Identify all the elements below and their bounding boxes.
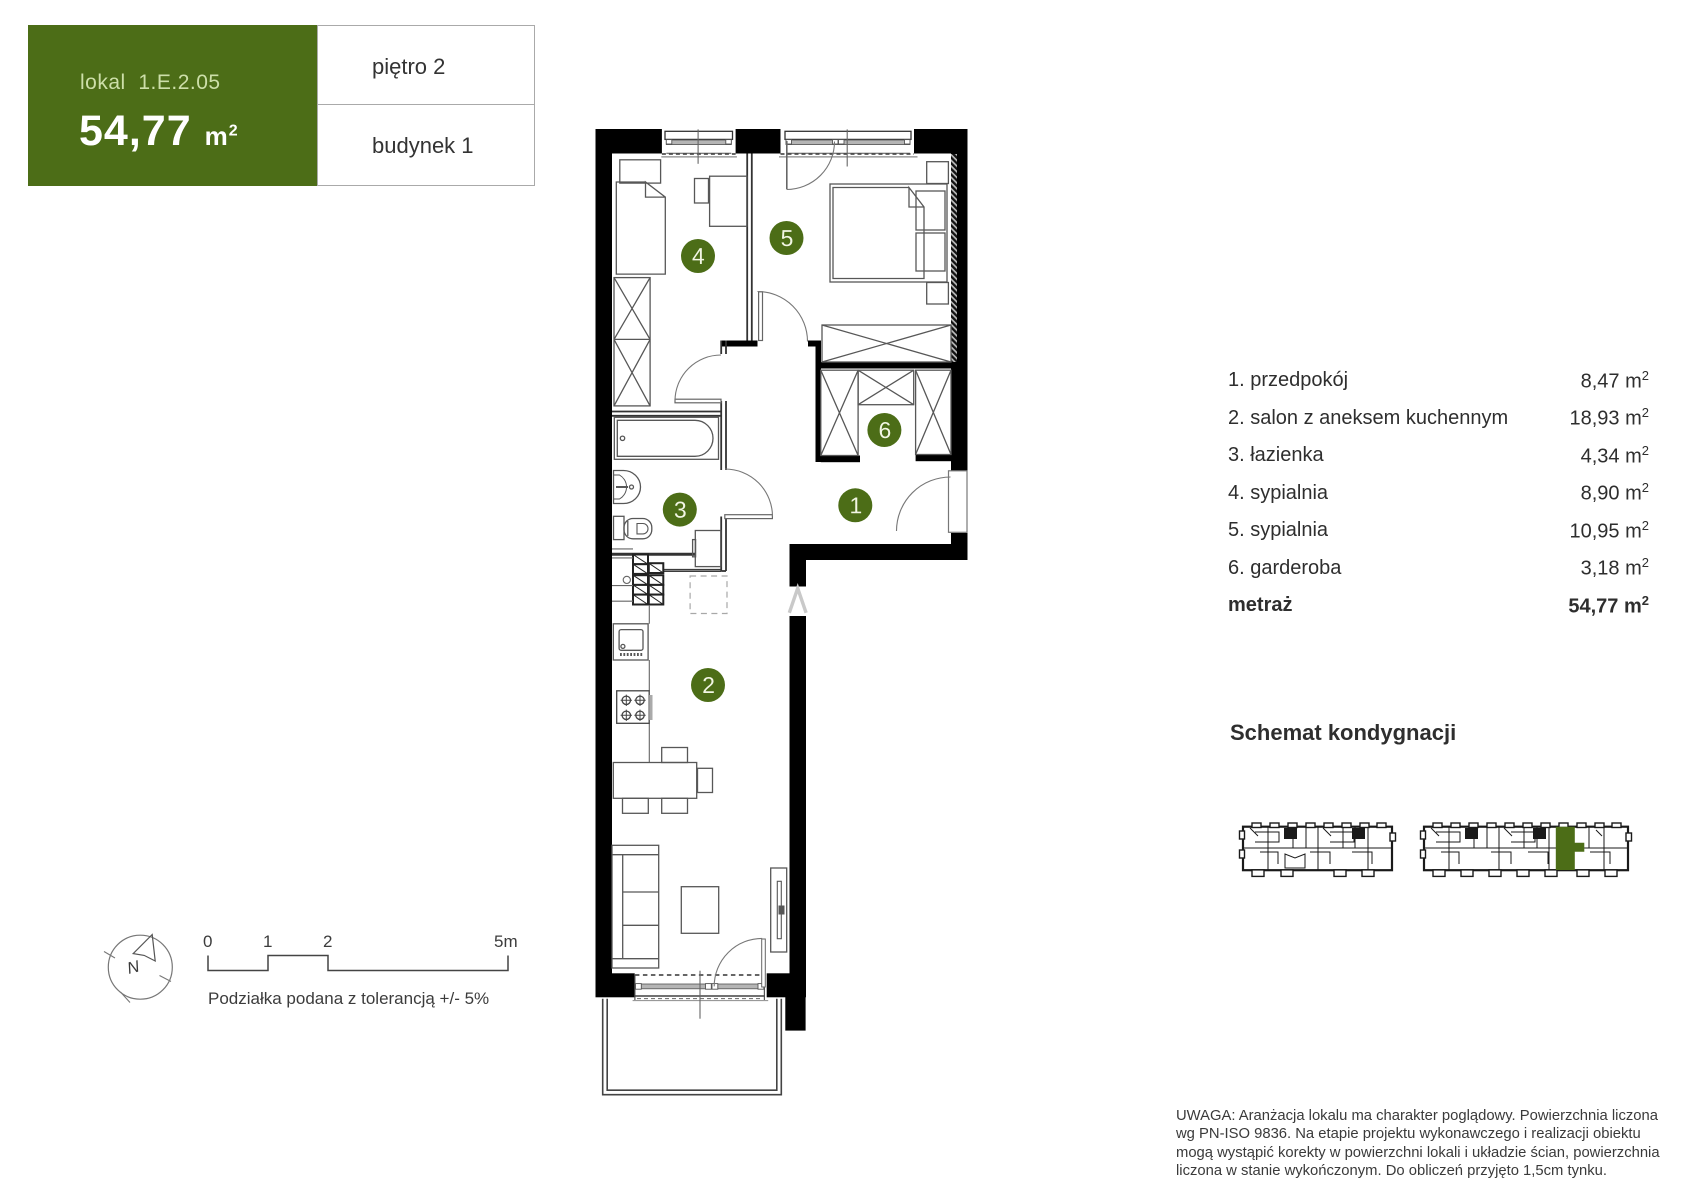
svg-text:N: N xyxy=(125,958,141,978)
